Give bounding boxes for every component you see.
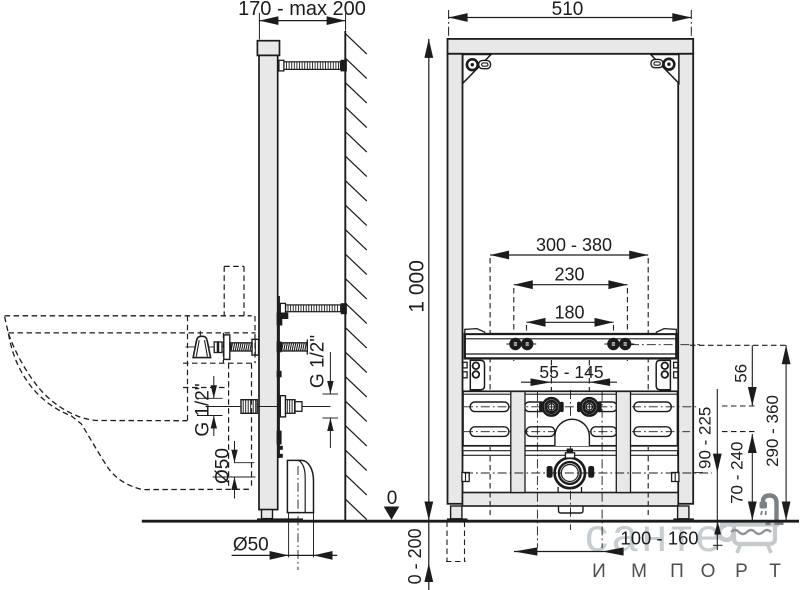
svg-text:Т: Т [769, 561, 781, 582]
svg-text:Ø50: Ø50 [233, 535, 269, 556]
svg-text:55 - 145: 55 - 145 [539, 362, 603, 382]
svg-text:И: И [592, 561, 606, 582]
svg-text:290 - 360: 290 - 360 [763, 395, 782, 467]
svg-text:100 - 160: 100 - 160 [620, 528, 698, 549]
svg-text:G 1/2": G 1/2" [193, 383, 214, 436]
svg-text:М: М [631, 561, 647, 582]
svg-text:180: 180 [554, 303, 584, 323]
svg-text:56: 56 [732, 364, 751, 383]
svg-text:О: О [701, 561, 716, 582]
svg-text:70 - 240: 70 - 240 [728, 442, 747, 504]
svg-text:0 - 200: 0 - 200 [405, 528, 425, 584]
svg-text:170 - max 200: 170 - max 200 [238, 0, 366, 20]
svg-text:1 000: 1 000 [406, 260, 429, 313]
svg-text:G 1/2": G 1/2" [308, 335, 329, 388]
svg-text:Ø50: Ø50 [213, 448, 234, 484]
svg-text:90 - 225: 90 - 225 [696, 407, 715, 469]
svg-text:300 - 380: 300 - 380 [536, 235, 612, 255]
svg-text:0: 0 [387, 488, 398, 509]
svg-text:П: П [670, 561, 684, 582]
svg-text:Р: Р [735, 561, 748, 582]
svg-text:230: 230 [554, 265, 584, 285]
